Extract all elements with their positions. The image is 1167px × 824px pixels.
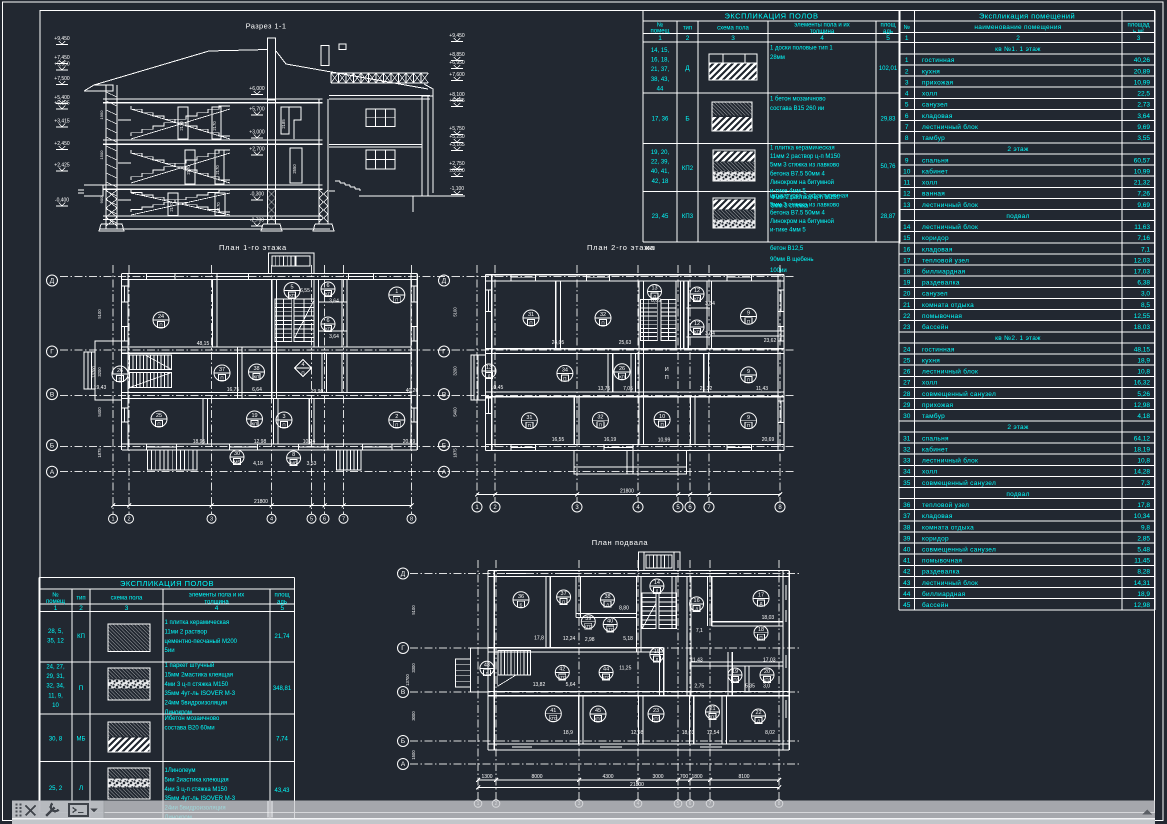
svg-text:10,99: 10,99 [1134,80,1151,87]
svg-text:9: 9 [747,369,750,375]
svg-text:13: 13 [486,365,492,371]
svg-text:2: 2 [1016,35,1020,42]
svg-text:Д: Д [442,278,447,285]
svg-text:10,34: 10,34 [1134,513,1151,520]
svg-text:11,63: 11,63 [1134,224,1150,231]
svg-text:лестничный блок: лестничный блок [922,123,978,131]
svg-text:6: 6 [323,517,326,523]
svg-text:2185: 2185 [281,119,286,129]
svg-text:элементы пола и их: элементы пола и их [794,23,850,29]
svg-text:№: № [903,24,909,31]
svg-text:5400: 5400 [453,407,458,417]
svg-text:12,98: 12,98 [254,439,267,445]
svg-text:43,43: 43,43 [274,788,290,794]
svg-text:3000: 3000 [411,711,416,721]
svg-text:18,95: 18,95 [193,439,206,445]
svg-text:28мм: 28мм [770,55,785,61]
svg-text:П: П [747,423,750,428]
svg-text:2,98: 2,98 [585,637,595,643]
svg-text:толщина: толщина [810,29,835,35]
svg-text:П: П [528,423,531,428]
svg-text:1 паркет штучный: 1 паркет штучный [165,662,215,669]
svg-text:37: 37 [903,513,911,520]
svg-text:Б: Б [520,602,523,607]
svg-text:23: 23 [653,708,659,714]
svg-text:3,53: 3,53 [307,461,317,467]
svg-text:5,64: 5,64 [566,682,576,688]
svg-text:5: 5 [290,285,293,291]
svg-text:А: А [442,469,447,476]
svg-text:5мм 3 стяжка из лавково: 5мм 3 стяжка из лавково [770,163,840,169]
svg-text:совмещенный санузел: совмещенный санузел [922,546,996,554]
svg-text:2170: 2170 [179,121,184,131]
svg-text:6,64: 6,64 [252,387,262,393]
svg-text:1Линолеум: 1Линолеум [165,768,196,774]
svg-text:КП: КП [289,293,295,298]
svg-text:13: 13 [903,202,911,209]
svg-text:Б: Б [685,116,689,123]
svg-text:Д: Д [695,606,698,611]
svg-text:МБ: МБ [234,460,241,465]
svg-text:31: 31 [903,435,911,442]
svg-text:лестничный блок: лестничный блок [922,223,978,231]
svg-text:25: 25 [903,358,911,365]
svg-text:2,75: 2,75 [694,684,704,690]
svg-text:11: 11 [903,180,910,187]
svg-text:40, 41,: 40, 41, [651,169,670,175]
svg-text:10: 10 [52,703,59,709]
svg-text:15: 15 [903,235,911,242]
svg-text:10,99: 10,99 [1134,168,1151,175]
svg-text:-1,100: -1,100 [450,186,464,192]
svg-text:схема пола: схема пола [717,26,749,32]
svg-text:Г: Г [401,645,405,652]
svg-text:4300: 4300 [602,774,613,780]
svg-text:8,5: 8,5 [1141,302,1150,309]
svg-text:Экспликация помещений: Экспликация помещений [979,12,1075,21]
svg-text:24,05: 24,05 [552,340,565,346]
svg-text:План 1-го этажа: План 1-го этажа [219,243,287,252]
svg-text:помещ: помещ [651,29,670,35]
svg-text:15мм 2мастика клеящая: 15мм 2мастика клеящая [165,672,234,678]
svg-text:16: 16 [694,598,700,604]
svg-text:1: 1 [395,289,398,295]
svg-text:41: 41 [903,558,911,565]
svg-text:8: 8 [905,135,909,142]
svg-text:11, 9,: 11, 9, [48,693,63,699]
svg-text:лестничный блок: лестничный блок [922,457,978,465]
svg-text:12: 12 [903,191,911,198]
svg-text:4: 4 [905,91,909,98]
svg-text:4: 4 [820,35,824,42]
svg-text:1: 1 [905,35,909,42]
svg-text:1500: 1500 [99,150,104,160]
svg-text:15: 15 [654,649,660,655]
svg-text:площ: площ [880,23,895,29]
svg-text:3000: 3000 [652,774,663,780]
svg-text:А: А [401,761,406,768]
svg-text:состава В15 260 ии: состава В15 260 ии [770,106,824,112]
svg-text:23,62: 23,62 [764,338,777,344]
svg-text:-0,400: -0,400 [55,198,69,204]
svg-text:6,38: 6,38 [1137,280,1150,287]
svg-text:7,74: 7,74 [276,737,288,743]
svg-text:23: 23 [903,324,911,331]
svg-text:Б: Б [401,738,405,745]
svg-text:3,64: 3,64 [1137,113,1150,120]
svg-text:19,43: 19,43 [94,385,107,391]
svg-text:1 плитка керамическая: 1 плитка керамическая [165,620,230,626]
svg-text:39: 39 [903,535,911,542]
svg-text:санузел: санузел [922,102,948,109]
svg-text:10,24: 10,24 [303,439,316,445]
svg-text:бетона В7.5 50мм 4: бетона В7.5 50мм 4 [770,171,825,177]
svg-text:10: 10 [659,414,665,420]
svg-text:+5,185: +5,185 [54,101,70,107]
svg-text:2170: 2170 [215,165,220,175]
svg-text:кладовая: кладовая [922,113,953,120]
svg-text:48,15: 48,15 [197,341,210,347]
svg-text:1: 1 [658,35,662,42]
svg-text:+2,450: +2,450 [54,141,70,147]
svg-text:Б: Б [50,442,54,449]
svg-text:20: 20 [764,669,770,675]
svg-text:3: 3 [731,35,735,42]
svg-text:28,87: 28,87 [880,214,896,220]
svg-text:+7,500: +7,500 [54,76,70,82]
svg-text:2170: 2170 [216,202,221,212]
svg-text:и-тике 4мм 5: и-тике 4мм 5 [770,228,806,234]
svg-text:ЭКСПЛИКАЦИЯ ПОЛОВ: ЭКСПЛИКАЦИЯ ПОЛОВ [120,579,214,588]
svg-text:холл: холл [922,380,937,387]
svg-text:Линокром на битумной: Линокром на битумной [770,218,834,225]
svg-text:16,19: 16,19 [604,437,617,443]
svg-text:17,03: 17,03 [763,657,776,663]
svg-text:14,31: 14,31 [1134,580,1151,587]
svg-text:2,85: 2,85 [1137,535,1150,542]
svg-text:12: 12 [694,321,700,327]
svg-text:32: 32 [600,312,606,318]
svg-text:12,03: 12,03 [1134,257,1151,264]
svg-text:±0,000: ±0,000 [449,168,464,174]
svg-text:кв №2. 1 этаж: кв №2. 1 этаж [995,335,1041,342]
svg-text:3200: 3200 [97,367,102,377]
svg-text:20,89: 20,89 [1134,68,1151,75]
svg-text:прихожая: прихожая [922,402,954,409]
svg-text:1875: 1875 [97,448,102,458]
svg-text:тип: тип [683,26,692,32]
svg-text:7,3: 7,3 [1141,480,1150,487]
svg-text:3,64: 3,64 [329,334,339,340]
svg-text:Д: Д [655,589,658,594]
svg-text:33: 33 [903,458,911,465]
svg-text:В: В [50,391,54,398]
svg-text:В: В [118,377,121,382]
svg-text:14,28: 14,28 [1134,469,1151,476]
svg-text:29, 31,: 29, 31, [46,674,65,680]
svg-text:5,18: 5,18 [623,636,633,642]
svg-text:-2,700: -2,700 [250,218,264,224]
svg-text:7: 7 [342,517,345,523]
svg-text:38: 38 [604,594,610,600]
svg-text:8: 8 [292,452,295,458]
svg-text:холл: холл [922,469,937,476]
svg-text:1300: 1300 [481,774,492,780]
svg-text:кабинет: кабинет [922,445,948,453]
svg-text:Разрез 1-1: Разрез 1-1 [246,22,287,31]
svg-text:24: 24 [903,346,911,353]
svg-text:12,98: 12,98 [1134,402,1151,409]
svg-text:спальня: спальня [922,157,949,164]
svg-text:25: 25 [156,413,162,419]
svg-text:10: 10 [903,168,911,175]
svg-text:Б: Б [442,442,446,449]
svg-text:прихожая: прихожая [922,80,954,87]
svg-text:комната отдыха: комната отдыха [922,302,974,309]
svg-text:44: 44 [657,86,664,92]
svg-text:тамбур: тамбур [922,412,945,420]
svg-text:И: И [665,367,669,373]
svg-text:8: 8 [410,517,413,523]
svg-text:6: 6 [326,318,329,324]
svg-text:коридор: коридор [922,535,949,542]
svg-text:П: П [79,685,84,692]
svg-text:тип: тип [76,596,85,602]
svg-text:48,15: 48,15 [1134,346,1151,353]
svg-text:28: 28 [903,391,911,398]
svg-text:9: 9 [747,415,750,421]
svg-text:2: 2 [686,35,690,42]
svg-text:1: 1 [905,57,909,64]
svg-text:12,98: 12,98 [631,730,644,736]
svg-text:2: 2 [395,414,398,420]
svg-text:21,32: 21,32 [700,386,713,392]
svg-text:12,54: 12,54 [707,730,720,736]
svg-text:П: П [563,376,566,381]
svg-text:0Ж0: 0Ж0 [645,246,655,252]
svg-text:18,03: 18,03 [682,730,695,736]
svg-text:9,69: 9,69 [1137,202,1150,209]
svg-text:В: В [442,391,446,398]
svg-text:13: 13 [651,286,657,292]
svg-text:МБ: МБ [77,737,86,743]
svg-text:37: 37 [561,591,567,597]
svg-text:90мм В щебень: 90мм В щебень [770,257,814,263]
svg-text:Д: Д [759,601,762,606]
svg-text:План подвала: План подвала [592,538,649,547]
svg-text:санузел: санузел [922,291,948,298]
svg-text:18,9: 18,9 [563,730,573,736]
svg-text:9,69: 9,69 [1137,124,1150,131]
svg-text:43: 43 [484,663,490,669]
svg-text:8,69: 8,69 [651,298,661,304]
svg-text:раздевалка: раздевалка [922,280,960,287]
svg-text:4ми 3 ц-п стяжка М150: 4ми 3 ц-п стяжка М150 [165,682,229,688]
svg-text:МБ: МБ [290,461,297,466]
svg-text:площ: площ [274,593,289,599]
svg-text:19: 19 [903,280,911,287]
svg-text:1500: 1500 [411,750,416,760]
svg-text:35мм 4ут-ль ISOVER М-3: 35мм 4ут-ль ISOVER М-3 [165,691,236,697]
svg-text:А: А [50,469,55,476]
svg-text:2170: 2170 [169,202,174,212]
svg-text:3,64: 3,64 [329,299,339,305]
svg-text:кухня: кухня [922,358,940,365]
svg-text:3,64: 3,64 [705,331,715,337]
svg-text:16,32: 16,32 [1134,380,1151,387]
svg-text:18,03: 18,03 [1134,324,1151,331]
svg-text:5ии: 5ии [165,648,175,654]
svg-text:подвал: подвал [1006,213,1029,220]
svg-text:17,8: 17,8 [1137,502,1150,509]
svg-text:элементы пола и их: элементы пола и их [189,593,245,599]
svg-text:24: 24 [158,314,164,320]
svg-text:9: 9 [905,157,909,164]
svg-text:1: 1 [111,517,114,523]
svg-text:32: 32 [903,446,911,453]
svg-text:кв №1. 1 этаж: кв №1. 1 этаж [995,46,1041,53]
svg-text:7,16: 7,16 [1137,235,1150,242]
svg-text:Г: Г [442,349,446,356]
svg-text:16: 16 [903,246,911,253]
svg-text:2 этаж: 2 этаж [1007,146,1029,153]
svg-text:Д: Д [401,571,406,578]
svg-text:27: 27 [903,380,911,387]
svg-text:18: 18 [758,627,764,633]
svg-text:13,82: 13,82 [533,682,546,688]
svg-text:+2,750: +2,750 [449,161,465,167]
svg-text:50,76: 50,76 [880,164,896,170]
svg-text:П: П [747,377,750,382]
svg-text:Д: Д [50,278,55,285]
svg-text:10,99: 10,99 [658,438,671,444]
svg-text:29,83: 29,83 [880,117,896,123]
svg-text:18,9: 18,9 [1137,358,1150,365]
svg-text:биллиардная: биллиардная [922,268,966,276]
svg-text:лестничный блок: лестничный блок [922,368,978,376]
svg-text:40,26: 40,26 [406,388,419,394]
svg-text:26: 26 [619,366,625,372]
svg-text:КП2: КП2 [682,166,694,172]
svg-text:Д: Д [485,671,488,676]
svg-text:П: П [747,319,750,324]
svg-text:3,64: 3,64 [705,301,715,307]
svg-text:КП: КП [694,297,700,302]
svg-text:3200: 3200 [453,366,458,376]
svg-text:10,8: 10,8 [1137,369,1150,376]
svg-text:2: 2 [905,68,909,75]
svg-text:9: 9 [747,311,750,317]
svg-text:23, 45: 23, 45 [652,214,669,220]
svg-text:+9,450: +9,450 [54,36,70,42]
svg-text:21800: 21800 [254,499,268,505]
svg-text:28, 5,: 28, 5, [48,629,63,635]
svg-text:21800: 21800 [630,782,644,788]
svg-text:16,75: 16,75 [227,387,240,393]
svg-text:адь: адь [883,29,893,35]
svg-text:лестничный блок: лестничный блок [922,201,978,209]
svg-text:лестничный блок: лестничный блок [922,579,978,587]
svg-text:+7,600: +7,600 [449,72,465,78]
svg-text:КП3: КП3 [682,214,694,220]
svg-text:помывочная: помывочная [922,558,962,565]
svg-text:схема пола: схема пола [111,596,143,602]
svg-text:Д: Д [655,657,658,662]
svg-text:102,01: 102,01 [879,66,898,72]
svg-text:11,45: 11,45 [1134,558,1150,565]
svg-text:+2,425: +2,425 [54,163,70,169]
svg-text:-0,300: -0,300 [250,192,264,198]
svg-text:П: П [282,423,285,428]
svg-text:34: 34 [562,368,568,374]
svg-text:бетон В12,5: бетон В12,5 [770,246,804,252]
svg-text:16,55: 16,55 [552,437,565,443]
svg-text:6: 6 [905,113,909,120]
svg-text:3,0: 3,0 [763,684,770,690]
svg-text:2170: 2170 [212,121,217,131]
svg-text:30, 8: 30, 8 [49,737,63,743]
svg-text:11мм 2 раствор ц-п М150: 11мм 2 раствор ц-п М150 [770,154,841,160]
svg-text:22: 22 [755,710,761,716]
svg-text:комната отдыха: комната отдыха [922,524,974,531]
svg-text:16, 18,: 16, 18, [651,58,670,64]
svg-text:П: П [660,422,663,427]
svg-text:8100: 8100 [738,774,749,780]
svg-text:36: 36 [903,502,911,509]
svg-text:21,32: 21,32 [1134,180,1151,187]
svg-text:12,55: 12,55 [1134,313,1151,320]
svg-text:38, 43,: 38, 43, [651,77,670,83]
svg-text:17,8: 17,8 [534,636,544,642]
svg-text:П: П [395,423,398,428]
svg-text:31: 31 [528,312,534,318]
svg-text:40,26: 40,26 [1134,57,1151,64]
svg-text:11ми 2 раствор: 11ми 2 раствор [165,629,208,635]
svg-text:Д: Д [757,719,760,724]
svg-text:12,24: 12,24 [563,636,576,642]
svg-text:бассейн: бассейн [922,323,949,331]
svg-text:8000: 8000 [531,774,542,780]
svg-text:ЭКСПЛИКАЦИЯ ПОЛОВ: ЭКСПЛИКАЦИЯ ПОЛОВ [724,12,818,21]
svg-text:кладовая: кладовая [922,246,953,253]
svg-text:4ии 3 ц-п стяжка М150: 4ии 3 ц-п стяжка М150 [165,787,229,793]
svg-text:5,35: 5,35 [745,684,755,690]
svg-text:ванная: ванная [922,191,945,198]
svg-text:9,8: 9,8 [1141,524,1150,531]
svg-text:37: 37 [219,367,225,373]
svg-text:+5,750: +5,750 [449,126,465,132]
svg-text:18: 18 [903,269,911,276]
svg-text:25, 2: 25, 2 [49,786,63,792]
svg-text:18,9: 18,9 [1137,591,1150,598]
svg-text:+9,450: +9,450 [449,33,465,39]
svg-text:2170: 2170 [186,165,191,175]
svg-text:+6,185: +6,185 [449,98,465,104]
svg-text:1 доски половые тип 1: 1 доски половые тип 1 [770,46,833,52]
svg-text:35, 12: 35, 12 [47,639,64,645]
svg-text:КП: КП [619,374,625,379]
svg-text:8,02: 8,02 [765,730,775,736]
svg-text:П: П [395,298,398,303]
svg-text:40: 40 [903,547,911,554]
svg-text:42: 42 [903,569,911,576]
svg-text:П: П [601,321,604,326]
svg-text:коридор: коридор [922,235,949,242]
svg-text:+5,250: +5,250 [449,134,465,140]
svg-text:цементно-песчаный М200: цементно-песчаный М200 [165,638,238,645]
svg-text:21,74: 21,74 [274,634,290,640]
svg-text:22: 22 [903,313,911,320]
